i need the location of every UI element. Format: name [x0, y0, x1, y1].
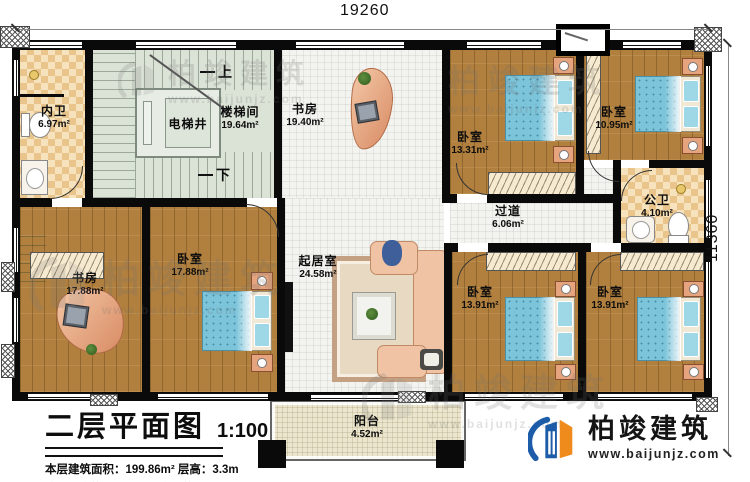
- elevator-door: [143, 101, 152, 145]
- nightstand: [682, 58, 703, 75]
- partition-line: [20, 94, 64, 97]
- window: [158, 393, 268, 400]
- nightstand: [555, 364, 576, 380]
- hatch-block: [1, 344, 15, 378]
- wall: [277, 198, 285, 396]
- plan-scale: 1:100: [217, 420, 268, 445]
- plant: [358, 72, 371, 85]
- column: [436, 440, 464, 468]
- floor-drain: [676, 184, 686, 194]
- window: [467, 41, 541, 49]
- room-label-yangtai: 阳台4.52m²: [325, 415, 409, 440]
- wardrobe: [586, 48, 601, 154]
- room-label-gongwei: 公卫4.10m²: [622, 194, 692, 219]
- room-label-neiwei: 内卫6.97m²: [12, 105, 96, 130]
- window: [136, 41, 236, 49]
- window: [13, 298, 19, 342]
- wall: [578, 243, 586, 395]
- top-dimension-label: 19260: [340, 2, 390, 20]
- computer-monitor: [354, 100, 379, 124]
- sink-counter: [626, 216, 655, 243]
- area-info: 本层建筑面积：199.86m² 层高：3.3m: [45, 461, 268, 477]
- stair-arrow-line: [200, 71, 215, 73]
- room-label-guodao: 过道6.06m²: [466, 205, 550, 230]
- room-label-woshi-a: 卧室13.31m²: [428, 131, 512, 156]
- wardrobe: [486, 252, 576, 271]
- plan-title: 二层平面图: [45, 403, 205, 445]
- hatch-block: [694, 27, 722, 52]
- window: [26, 41, 82, 49]
- tv-unit: [285, 282, 293, 352]
- window: [705, 262, 711, 378]
- brand-name: 柏竣建筑: [588, 416, 720, 443]
- title-underline: [45, 447, 223, 457]
- stairs-down-label: 下: [198, 165, 230, 185]
- hatch-block: [1, 262, 15, 292]
- door-opening: [621, 160, 649, 168]
- room-label-woshi-c: 卧室17.88m²: [148, 253, 232, 278]
- wall: [442, 48, 450, 203]
- nightstand: [683, 364, 704, 380]
- floor-plan-canvas: 19260 11360: [0, 0, 750, 482]
- stair-arrow-line: [198, 174, 213, 176]
- computer-monitor: [63, 303, 90, 328]
- window: [13, 60, 19, 96]
- top-dimension-line: [15, 29, 710, 30]
- brand-logo: 柏竣建筑 www.baijunjz.com: [528, 412, 720, 464]
- room-label-qijushi: 起居室24.58m²: [276, 255, 360, 280]
- wall: [142, 205, 150, 395]
- wardrobe: [488, 172, 576, 195]
- bed: [202, 291, 272, 351]
- wall: [444, 243, 452, 395]
- wardrobe: [620, 252, 704, 271]
- brand-url: www.baijunjz.com: [588, 447, 720, 461]
- person: [382, 240, 402, 266]
- floor-drain: [29, 70, 39, 80]
- brand-logo-icon: [528, 412, 580, 464]
- window: [296, 41, 404, 49]
- sliding-door: [311, 394, 409, 401]
- nightstand: [553, 57, 574, 74]
- right-dimension-line: [728, 44, 729, 456]
- room-label-shufang-top: 书房19.40m²: [263, 103, 347, 128]
- nightstand: [251, 354, 273, 372]
- nightstand: [683, 281, 704, 297]
- right-dimension-label: 11360: [704, 214, 722, 262]
- plant: [86, 344, 97, 355]
- window: [623, 41, 681, 49]
- door-opening: [458, 243, 488, 252]
- door-opening: [457, 194, 487, 203]
- side-table: [420, 349, 443, 370]
- sink-counter: [21, 160, 48, 195]
- bed: [505, 75, 575, 141]
- room-label-woshi-d: 卧室13.91m²: [438, 286, 522, 311]
- stair-treads: [93, 48, 135, 198]
- door-opening: [591, 243, 621, 252]
- hatch-block: [696, 397, 718, 412]
- window: [705, 66, 711, 146]
- window: [598, 393, 692, 400]
- plant: [366, 308, 378, 320]
- room-label-woshi-e: 卧室13.91m²: [568, 286, 652, 311]
- nightstand: [682, 137, 703, 154]
- room-label-shufang-b: 书房17.88m²: [43, 272, 127, 297]
- nightstand: [553, 146, 574, 163]
- door-opening: [52, 198, 82, 207]
- hatch-block: [398, 391, 426, 403]
- nightstand: [251, 272, 273, 290]
- title-block: 二层平面图 1:100 本层建筑面积：199.86m² 层高：3.3m 注：阳台…: [45, 403, 268, 482]
- room-label-woshi-b: 卧室10.95m²: [572, 106, 656, 131]
- stairs-up-label: 上: [200, 62, 232, 82]
- window: [465, 393, 563, 400]
